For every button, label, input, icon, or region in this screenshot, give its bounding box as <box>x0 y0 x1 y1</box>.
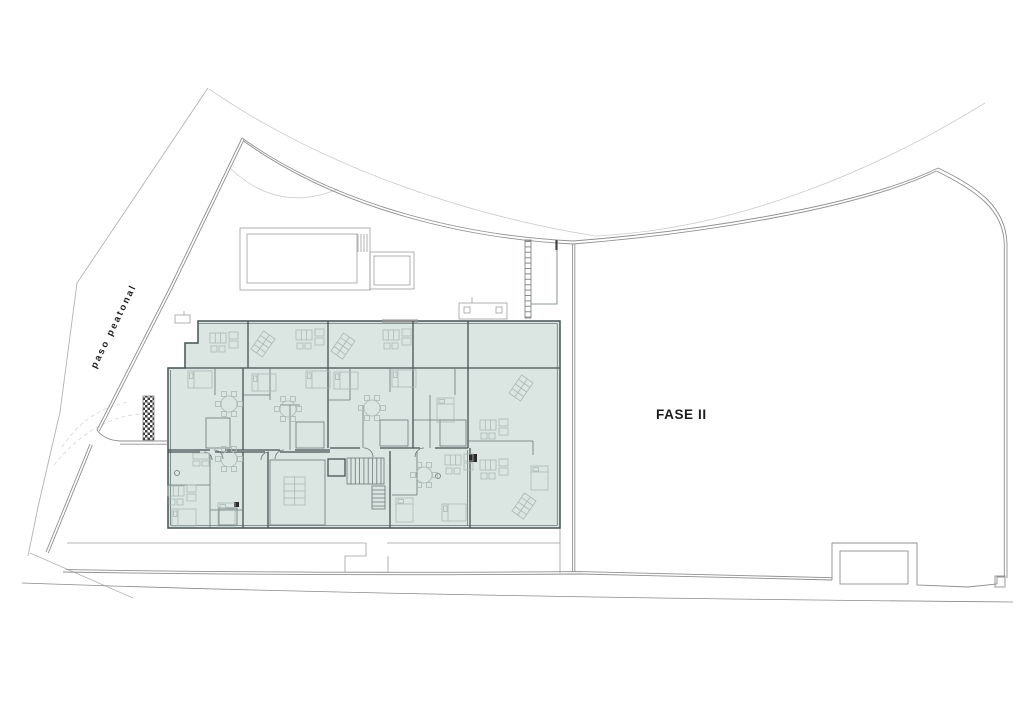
gate-notch <box>832 543 1004 587</box>
entrance-area <box>143 396 154 440</box>
pool-basin <box>247 234 357 283</box>
crosswalk-hatch <box>143 396 154 440</box>
road-label: paso peatonal <box>89 282 139 370</box>
road-end-cut <box>30 553 133 598</box>
pool-side-deck <box>370 252 414 289</box>
retaining-ramp <box>175 240 557 323</box>
pool-area <box>240 228 414 290</box>
turning-guide-arc <box>62 402 130 447</box>
pool-side-deck-inner <box>374 256 410 285</box>
outer-road-curve <box>209 89 985 236</box>
gate-notch-inner <box>840 551 908 584</box>
site-plan: paso peatonal FASE II <box>0 0 1024 723</box>
entrance-step <box>345 543 366 572</box>
pool-deck <box>240 228 370 290</box>
court-outline <box>531 241 557 304</box>
site-plan-canvas: paso peatonal FASE II <box>0 0 1024 723</box>
pool-steps <box>358 234 367 252</box>
planter-end <box>496 307 502 313</box>
street-line <box>22 583 1013 602</box>
planter <box>459 303 507 319</box>
boundary-foot <box>995 576 1005 587</box>
building-footprint <box>168 321 560 528</box>
planter-end <box>464 307 470 313</box>
plot-lines <box>22 528 1013 602</box>
shaft <box>175 315 190 323</box>
phase-label: FASE II <box>656 407 707 422</box>
